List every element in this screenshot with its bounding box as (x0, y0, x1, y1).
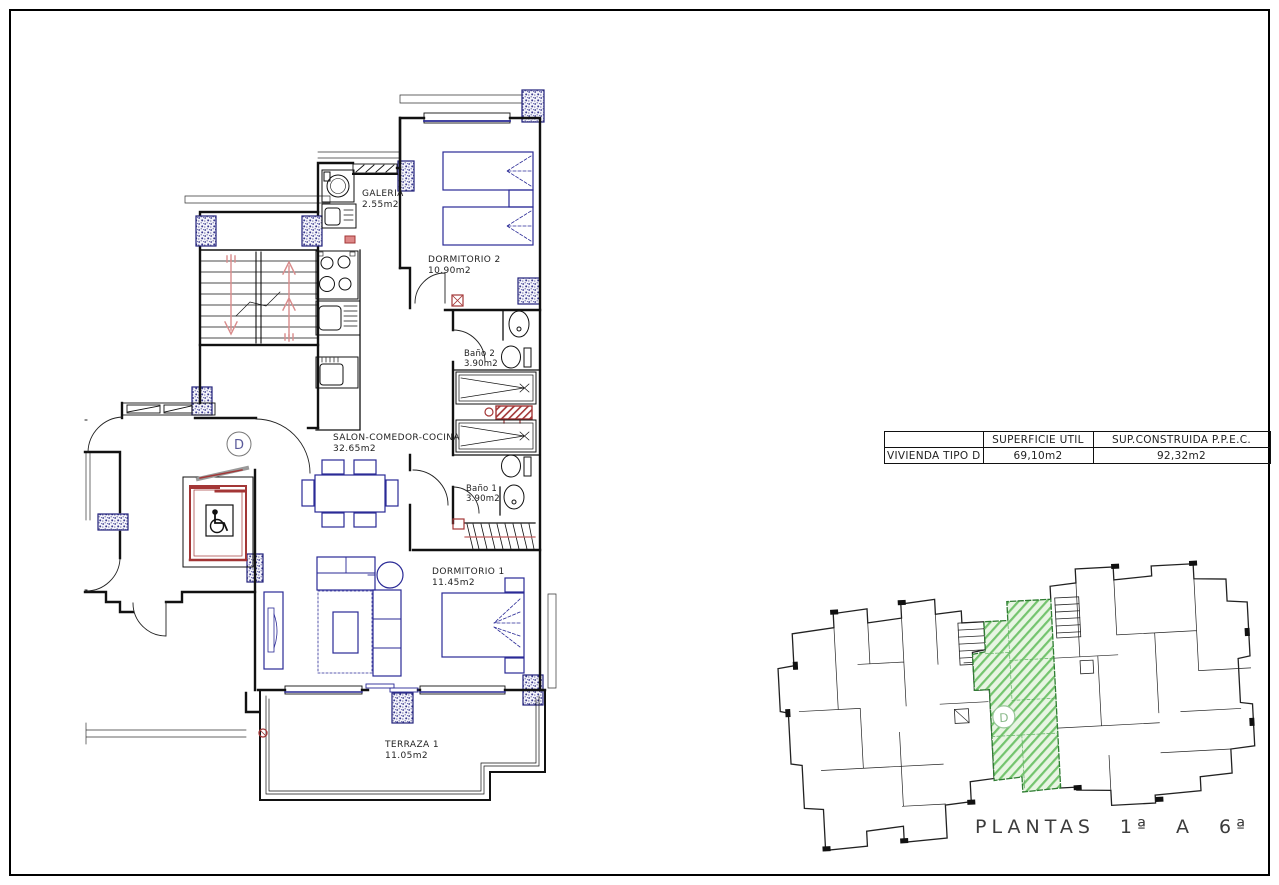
key-plan-caption: PLANTAS 1ª A 6ª (975, 816, 1255, 838)
room-label-bano2: Baño 2 (464, 349, 495, 359)
header-superficie-util: SUPERFICIE UTIL (983, 432, 1093, 448)
stair-treads (200, 261, 318, 338)
main-floor-plan: D GALERIA 2.55m2 DORMITORIO 2 10.90m2 Ba… (85, 90, 556, 800)
shower-tray-icon (456, 420, 536, 452)
stairwell (200, 212, 318, 345)
room-label-dormitorio1: DORMITORIO 1 (432, 567, 505, 577)
table-row: VIVIENDA TIPO D 69,10m2 92,32m2 (885, 448, 1271, 464)
valve-icon (345, 236, 355, 243)
bathroom-fixtures (452, 295, 536, 509)
cell-sup-construida: 92,32m2 (1093, 448, 1270, 464)
rug (318, 591, 372, 673)
room-area-bano2: 3.90m2 (464, 359, 498, 369)
key-plan-wall-marks (1062, 557, 1258, 806)
room-label-dormitorio2: DORMITORIO 2 (428, 255, 501, 265)
room-area-salon: 32.65m2 (333, 444, 376, 454)
cell-vivienda-tipo: VIVIENDA TIPO D (885, 448, 984, 464)
key-plan: D (773, 557, 1260, 853)
double-bed-icon (442, 593, 524, 657)
galeria-fixtures (322, 170, 356, 243)
dishwasher-icon (316, 357, 358, 388)
key-plan-right-wing (1049, 557, 1258, 808)
key-plan-unit-letter: D (999, 711, 1009, 725)
washing-machine-icon (322, 170, 354, 202)
dormitorio2-furniture (443, 152, 533, 245)
stove-icon (316, 251, 358, 299)
room-label-salon: SALON-COMEDOR-COCINA (333, 433, 460, 443)
room-area-dormitorio1: 11.45m2 (432, 578, 475, 588)
room-area-bano1: 3.90m2 (466, 494, 500, 504)
nightstand-icon (509, 190, 533, 207)
sofa-icon (317, 557, 401, 676)
nightstand-icon (505, 578, 524, 592)
coffee-table-icon (333, 612, 358, 653)
washbasin-icon (509, 311, 529, 337)
key-plan-left-wing (775, 596, 998, 854)
dormitorio1-furniture (442, 578, 524, 673)
room-area-dormitorio2: 10.90m2 (428, 266, 471, 276)
key-plan-elevator (1080, 660, 1094, 674)
header-sup-construida: SUP.CONSTRUIDA P.P.E.C. (1093, 432, 1270, 448)
door-arcs (85, 273, 485, 636)
toilet-icon (502, 455, 532, 477)
room-area-galeria: 2.55m2 (362, 200, 399, 210)
washbasin-icon (504, 485, 524, 509)
elevator (183, 468, 253, 567)
dining-table-icon (302, 460, 398, 527)
table-header-row: SUPERFICIE UTIL SUP.CONSTRUIDA P.P.E.C. (885, 432, 1271, 448)
interior-walls (316, 250, 540, 523)
header-empty (885, 432, 984, 448)
kitchen-fixtures (316, 251, 360, 388)
room-label-terraza: TERRAZA 1 (384, 740, 439, 750)
unit-letter: D (234, 438, 244, 453)
unit-letter-badge: D (227, 432, 251, 456)
surface-summary-table: SUPERFICIE UTIL SUP.CONSTRUIDA P.P.E.C. … (884, 431, 1271, 464)
louver-window-galeria (353, 164, 397, 174)
room-label-galeria: GALERIA (362, 189, 404, 199)
tv-unit-icon (264, 592, 283, 669)
key-plan-wall-marks (780, 597, 978, 853)
wheelchair-icon (206, 505, 233, 536)
salon-furniture (264, 460, 403, 676)
terrace-sliding-door (366, 684, 418, 692)
nightstand-icon (505, 658, 524, 673)
stair-direction-arrows (225, 255, 295, 341)
plant-icon (368, 562, 403, 588)
structural-columns (98, 90, 544, 723)
shower-tray-icon (456, 372, 536, 404)
laundry-sink-icon (322, 204, 356, 228)
cell-superficie-util: 69,10m2 (983, 448, 1093, 464)
room-label-bano1: Baño 1 (466, 484, 497, 494)
kitchen-sink-icon (316, 301, 360, 335)
toilet-icon (502, 346, 532, 368)
room-area-terraza: 11.05m2 (385, 751, 428, 761)
